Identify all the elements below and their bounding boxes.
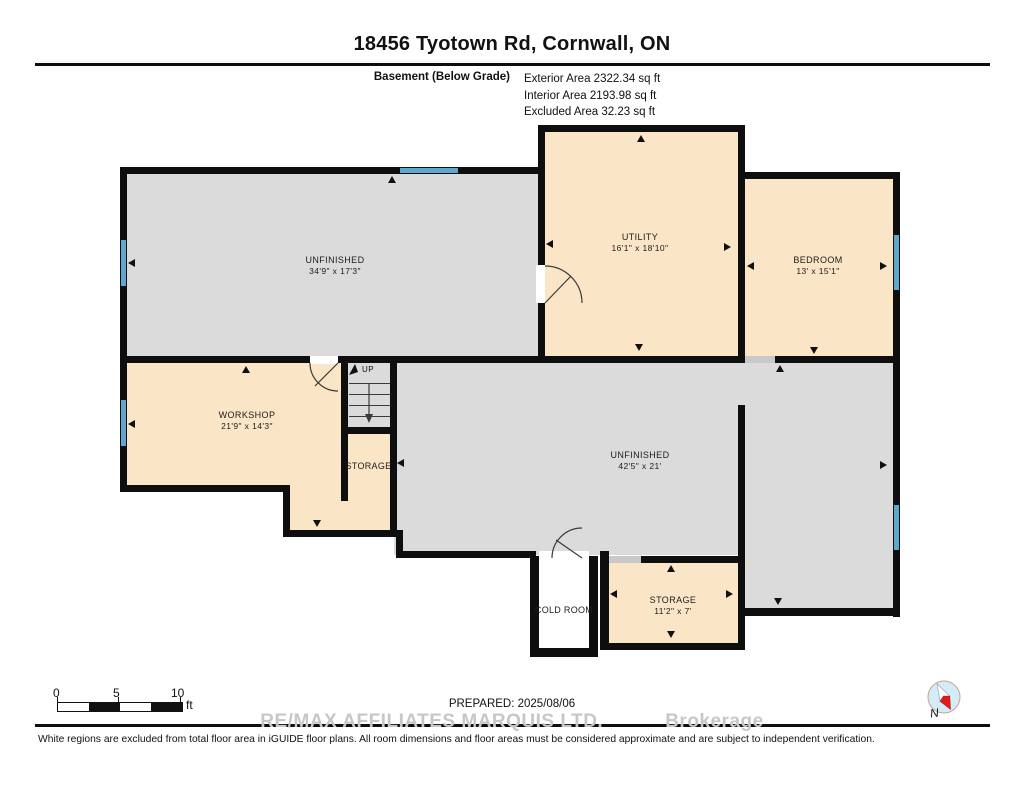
- dimension-arrow-icon: [747, 262, 754, 270]
- room-unfinished-lower-right: [745, 554, 893, 612]
- dimension-arrow-icon: [546, 240, 553, 248]
- room-storage-upper: [344, 430, 393, 534]
- label-workshop: WORKSHOP 21'9" x 14'3": [172, 410, 322, 432]
- window-marker: [121, 240, 126, 286]
- floor-plan: UP UNFINISHED 34'9" x 17'3" UTILITY 16'1…: [0, 0, 1024, 791]
- dimension-arrow-icon: [637, 135, 645, 142]
- disclaimer-text: White regions are excluded from total fl…: [38, 734, 1003, 745]
- label-cold-room: COLD ROOM: [534, 605, 594, 616]
- wall: [641, 556, 742, 563]
- wall: [341, 427, 397, 434]
- wall: [738, 172, 900, 179]
- dimension-arrow-icon: [776, 365, 784, 372]
- wall: [120, 356, 310, 363]
- dimension-arrow-icon: [397, 459, 404, 467]
- window-marker: [121, 400, 126, 446]
- label-storage-lower: STORAGE 11'2" x 7': [608, 595, 738, 617]
- wall-opening: [743, 356, 775, 363]
- wall: [603, 643, 743, 650]
- door-gap: [310, 356, 338, 364]
- label-unfinished-upper: UNFINISHED 34'9" x 17'3": [235, 255, 435, 277]
- label-unfinished-lower: UNFINISHED 42'5" x 21': [565, 450, 715, 472]
- wall-opening: [609, 556, 641, 563]
- dimension-arrow-icon: [724, 243, 731, 251]
- dimension-arrow-icon: [726, 590, 733, 598]
- dimension-arrow-icon: [880, 262, 887, 270]
- dimension-arrow-icon: [810, 347, 818, 354]
- wall: [120, 167, 545, 174]
- dimension-arrow-icon: [667, 565, 675, 572]
- wall: [538, 125, 545, 265]
- wall: [338, 356, 743, 363]
- wall: [775, 356, 900, 363]
- wall: [120, 485, 290, 492]
- dimension-arrow-icon: [128, 420, 135, 428]
- dimension-arrow-icon: [774, 598, 782, 605]
- dimension-arrow-icon: [242, 366, 250, 373]
- label-bedroom: BEDROOM 13' x 15'1": [743, 255, 893, 277]
- wall: [538, 125, 745, 132]
- window-marker: [894, 235, 899, 290]
- window-marker: [400, 168, 458, 173]
- prepared-date: PREPARED: 2025/08/06: [0, 698, 1024, 710]
- stairs-up-label: UP: [362, 365, 374, 374]
- wall: [283, 530, 397, 537]
- floorplan-page: 18456 Tyotown Rd, Cornwall, ON Basement …: [0, 0, 1024, 791]
- door-gap: [539, 551, 589, 558]
- dimension-arrow-icon: [667, 631, 675, 638]
- dimension-arrow-icon: [128, 259, 135, 267]
- dimension-arrow-icon: [635, 344, 643, 351]
- label-utility: UTILITY 16'1" x 18'10": [565, 232, 715, 254]
- label-storage-upper: STORAGE: [340, 461, 397, 472]
- stair-steps: [349, 383, 390, 425]
- wall: [745, 608, 900, 616]
- wall: [530, 648, 598, 657]
- brokerage-watermark: RE/MAX AFFILIATES MARQUIS LTD. Brokerage: [0, 711, 1024, 733]
- dimension-arrow-icon: [388, 176, 396, 183]
- door-gap: [536, 265, 545, 303]
- dimension-arrow-icon: [610, 590, 617, 598]
- wall: [738, 405, 745, 650]
- wall: [738, 125, 745, 179]
- wall: [538, 303, 545, 363]
- window-marker: [894, 505, 899, 550]
- wall: [396, 551, 536, 558]
- wall: [390, 363, 397, 537]
- dimension-arrow-icon: [313, 520, 321, 527]
- room-cold-room: [539, 558, 589, 648]
- dimension-arrow-icon: [880, 461, 887, 469]
